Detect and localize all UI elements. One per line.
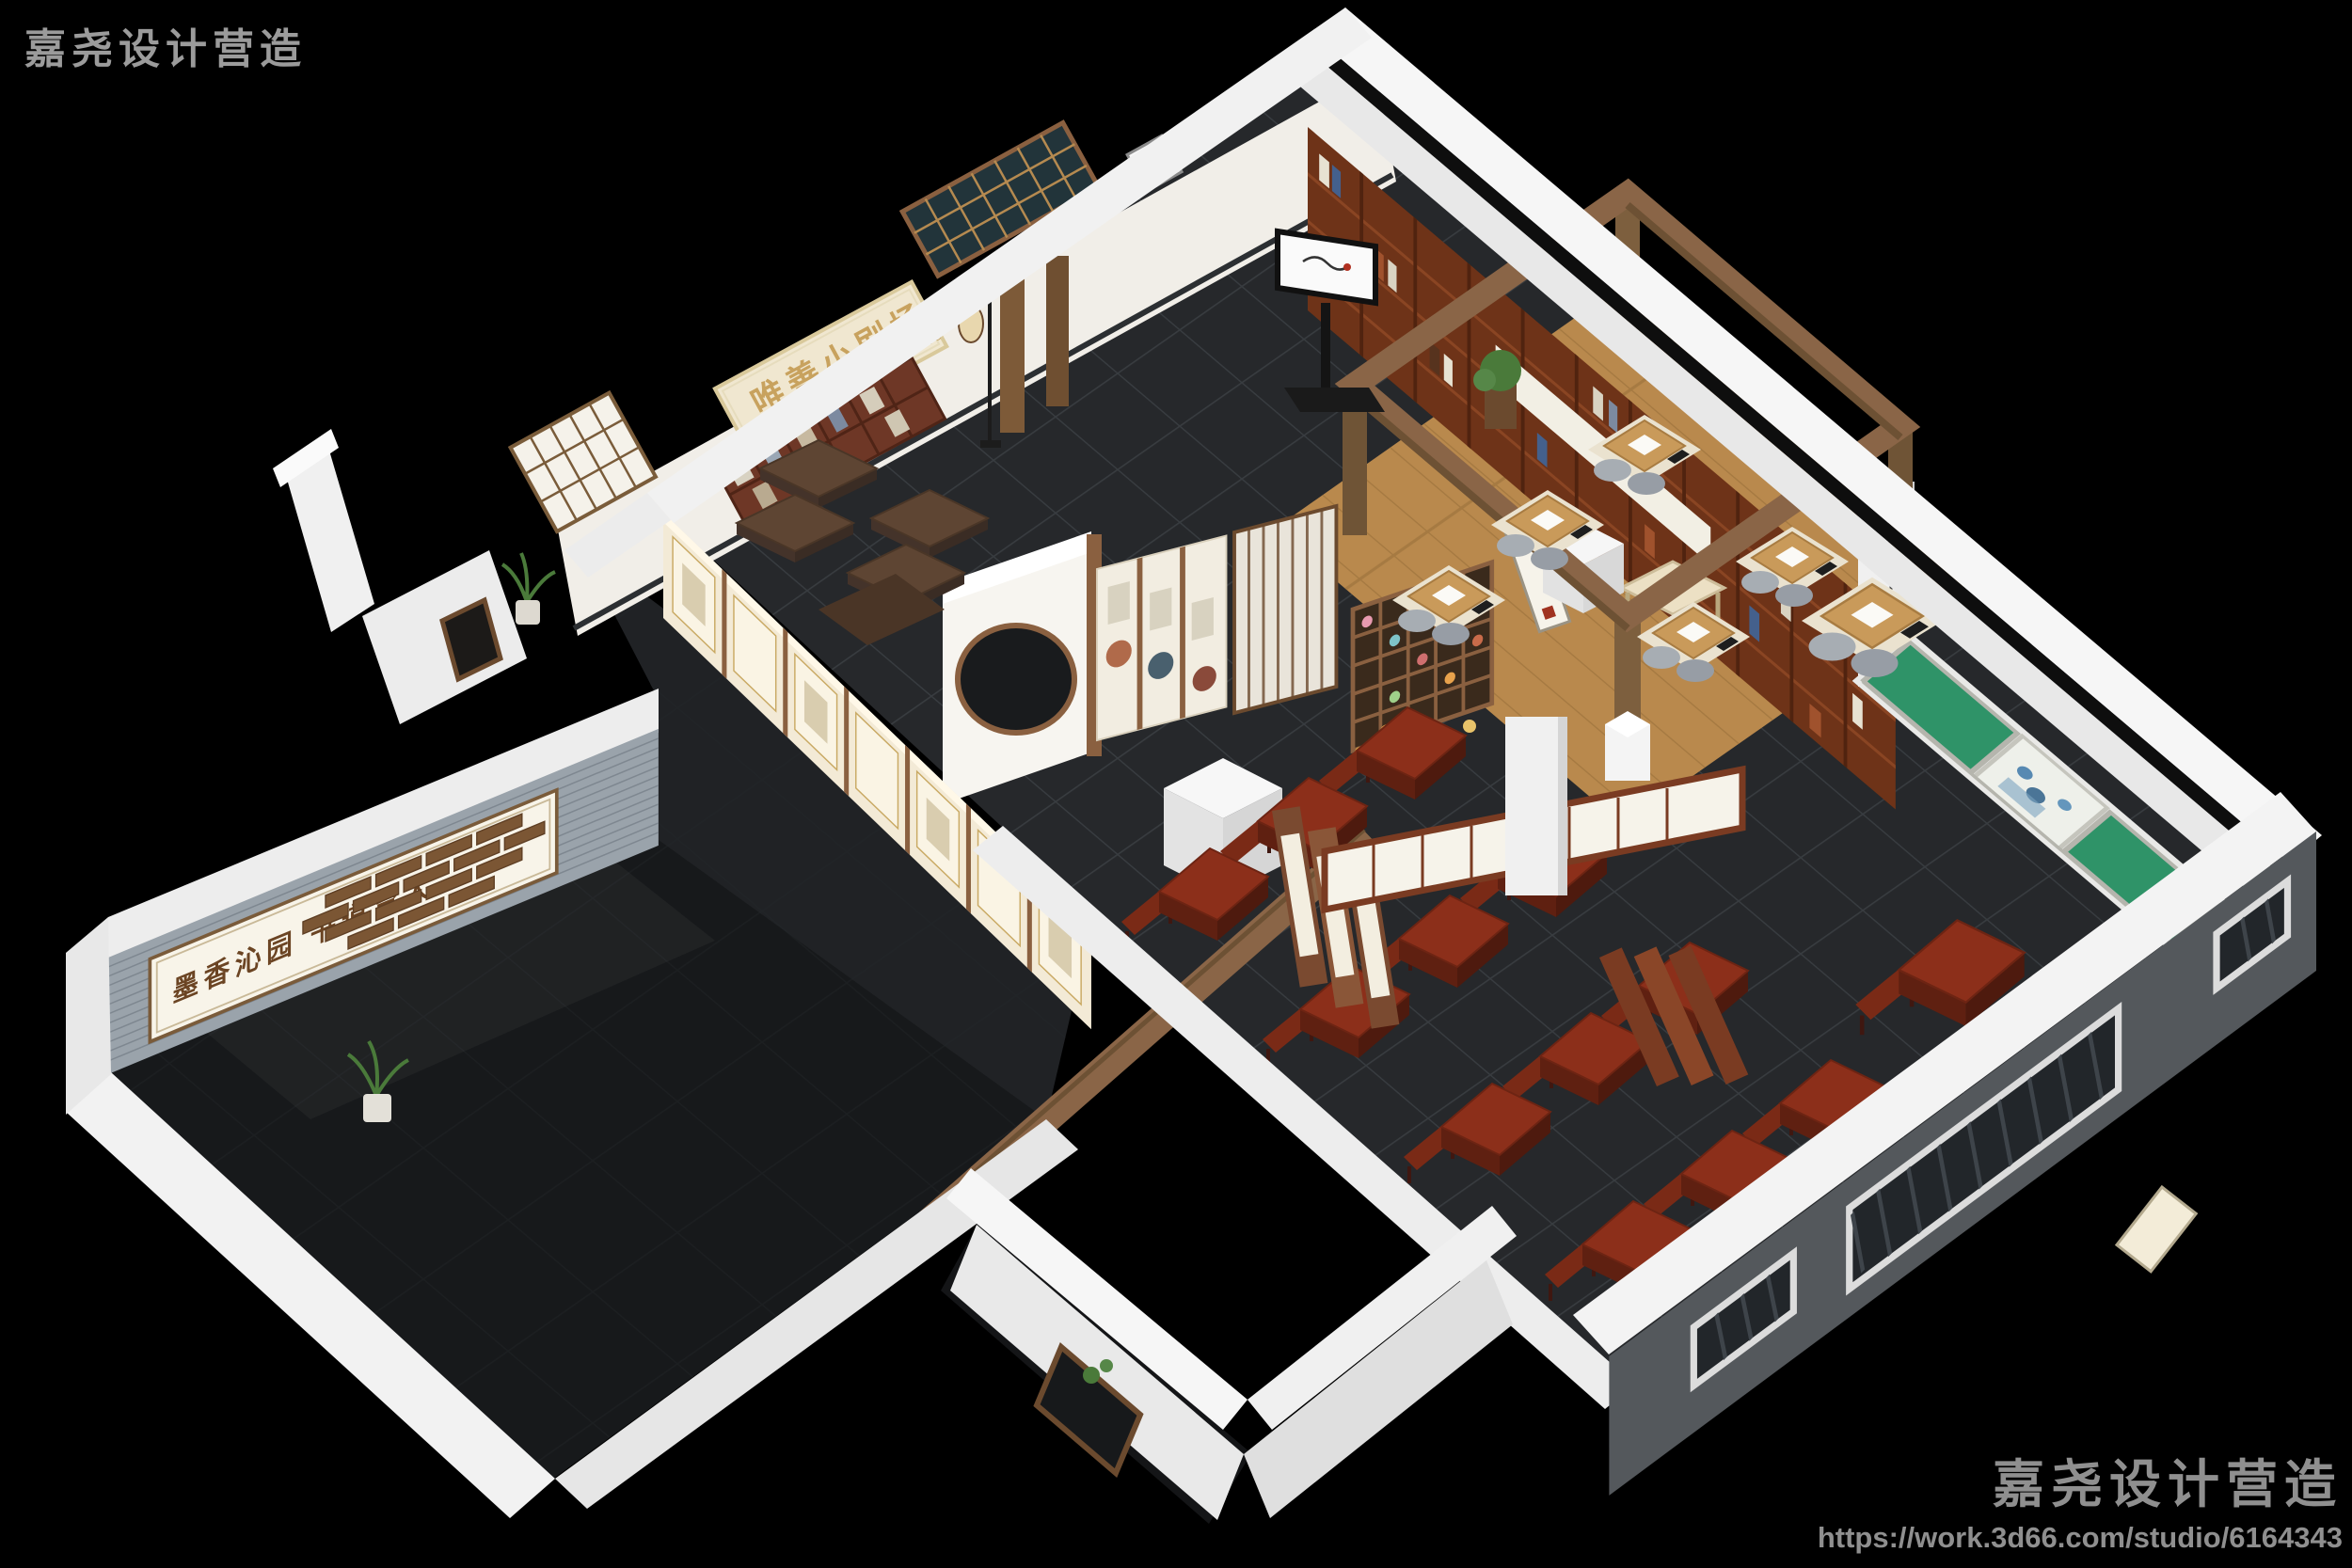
white-column [1505,717,1565,895]
render-canvas: 唯善小剧场 WEI SHAN XIAO JU CHANG [0,0,2352,1568]
exhibition-poster-wall [1097,536,1226,741]
wood-column [1000,273,1025,433]
studio-watermark-top: 嘉尧设计营造 [24,15,307,75]
isometric-interior-render: 唯善小剧场 WEI SHAN XIAO JU CHANG [0,0,2352,1568]
studio-url: https://work.3d66.com/studio/6164343 [1818,1521,2343,1555]
corner-scroll [2117,1187,2196,1272]
studio-watermark-bottom: 嘉尧设计营造 [1993,1442,2343,1517]
glass-lattice-partition [1234,506,1336,713]
wood-column [1046,256,1069,406]
